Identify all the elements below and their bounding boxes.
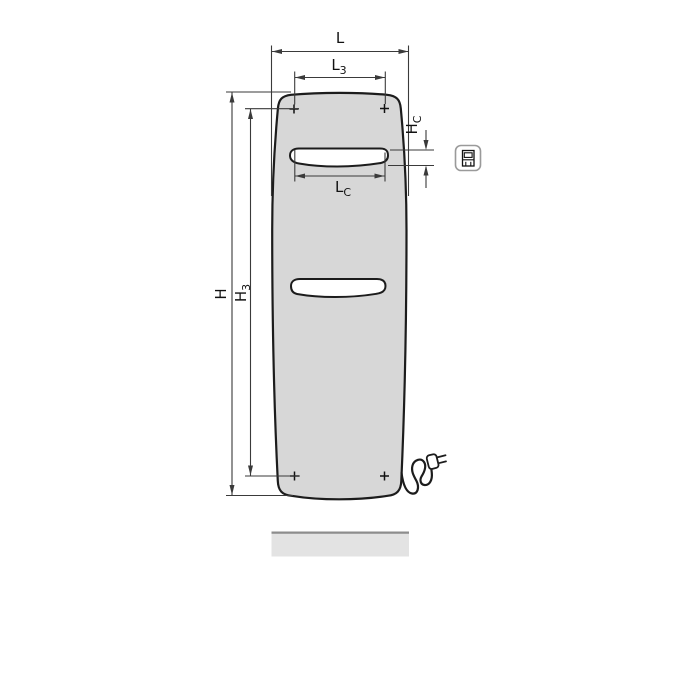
label-mounting-width-L3: L3 (328, 58, 350, 76)
label-H3-base: H (232, 291, 250, 302)
radiator-dimension-diagram: L L3 LC H H3 HC (0, 0, 700, 700)
label-slot-height-HC: HC (405, 108, 423, 142)
label-L-base: L (336, 29, 344, 47)
label-overall-width-L: L (332, 31, 348, 49)
label-H-base: H (212, 288, 230, 299)
label-HC-base: H (403, 123, 421, 134)
technical-drawing-canvas (0, 0, 700, 700)
floor-shadow (272, 533, 410, 557)
label-L3-sub: 3 (340, 64, 347, 77)
middle-vent-slot (291, 279, 386, 297)
label-HC-sub: C (411, 116, 424, 124)
label-mounting-height-H3: H3 (234, 276, 252, 310)
label-L3-base: L (331, 56, 339, 74)
label-LC-sub: C (343, 186, 351, 199)
power-cable (402, 451, 448, 493)
electric-connection-icon (456, 146, 481, 171)
upper-vent-slot (290, 149, 388, 167)
label-H3-sub: 3 (240, 284, 253, 291)
power-plug-icon (426, 451, 448, 469)
label-slot-width-LC: LC (332, 180, 354, 198)
label-overall-height-H: H (214, 279, 232, 309)
